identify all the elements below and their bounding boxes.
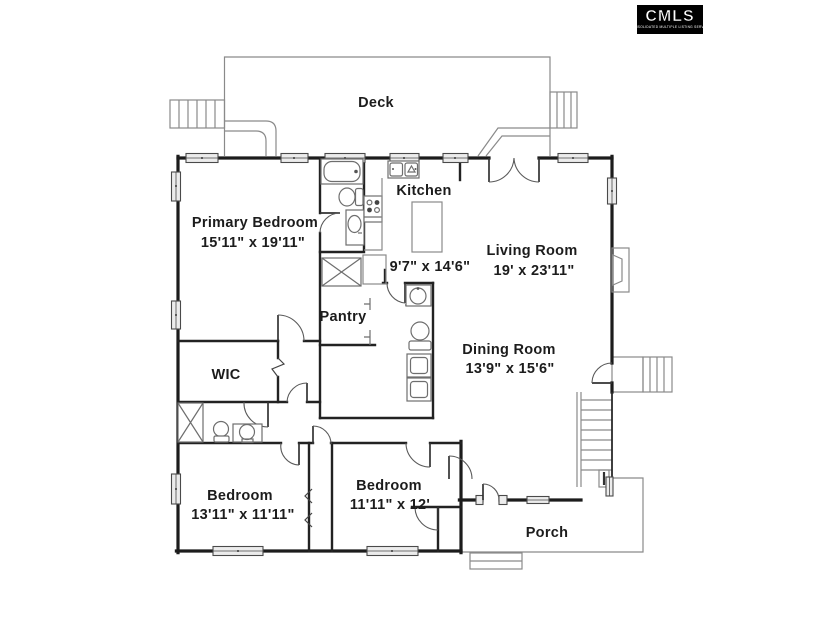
sink-vanity-icon (233, 424, 262, 443)
window (172, 301, 181, 329)
cmls-logo-text: CMLS (645, 9, 694, 25)
door (278, 315, 304, 341)
shower-icon (178, 403, 203, 442)
door-jamb (499, 496, 507, 505)
label-bedroom-right: Bedroom (356, 478, 422, 494)
label-bedroom-left: Bedroom (207, 488, 273, 504)
window (213, 547, 263, 556)
window (186, 154, 218, 163)
side-landing (612, 357, 672, 392)
label-dining-room: Dining Room (462, 342, 556, 358)
deck-walkway-left (225, 121, 277, 156)
kitchen-counter (363, 178, 386, 284)
fixtures (178, 159, 629, 443)
washer-icon (407, 354, 431, 377)
floorplan-page: Deck Primary Bedroom 15'11" x 19'11" Kit… (0, 0, 840, 630)
utility-closet-icon (322, 258, 361, 286)
staircase (577, 392, 612, 487)
label-pantry: Pantry (320, 309, 367, 325)
dims-kitchen: 9'7" x 14'6" (390, 259, 471, 275)
stove-icon (364, 196, 382, 222)
window (608, 178, 617, 204)
door (387, 283, 405, 303)
deck-stairs-right (550, 92, 577, 128)
window (172, 474, 181, 504)
wall-break-mark (272, 358, 284, 377)
label-porch: Porch (526, 525, 569, 541)
floorplan-drawing: Deck Primary Bedroom 15'11" x 19'11" Kit… (0, 0, 840, 630)
door (483, 484, 499, 500)
door (281, 443, 299, 465)
dims-primary-bedroom: 15'11" x 19'11" (201, 235, 305, 251)
bathtub-icon (321, 159, 363, 184)
label-deck: Deck (358, 95, 394, 111)
sink-vanity-icon (346, 210, 364, 245)
window (606, 477, 613, 496)
door-jamb (476, 496, 483, 505)
label-living-room: Living Room (486, 243, 577, 259)
window (443, 154, 468, 163)
toilet-icon (409, 322, 431, 350)
deck-walkway-right (478, 128, 550, 156)
dryer-icon (407, 378, 431, 401)
label-wic: WIC (211, 367, 240, 383)
toilet-icon (339, 188, 363, 206)
window (367, 547, 418, 556)
door (592, 363, 612, 383)
deck-stairs-left (170, 100, 225, 128)
porch-steps (470, 553, 522, 569)
dims-bedroom-left: 13'11" x 11'11" (191, 507, 294, 523)
sink-icon (406, 285, 431, 306)
door (406, 443, 430, 467)
kitchen-island (412, 202, 442, 252)
label-primary-bedroom: Primary Bedroom (192, 215, 318, 231)
door (287, 383, 307, 402)
door (320, 213, 340, 233)
dims-living-room: 19' x 23'11" (493, 263, 574, 279)
window (281, 154, 308, 163)
fireplace-icon (612, 248, 629, 292)
door (313, 426, 331, 444)
french-door (489, 158, 539, 182)
cmls-logo-caption: CONSOLIDATED MULTIPLE LISTING SERVICE (630, 26, 710, 29)
window (558, 154, 588, 163)
door (244, 402, 268, 427)
window (527, 497, 549, 504)
label-kitchen: Kitchen (396, 183, 451, 199)
toilet-icon (214, 422, 230, 443)
dims-dining-room: 13'9" x 15'6" (465, 361, 554, 377)
cmls-logo: CMLS CONSOLIDATED MULTIPLE LISTING SERVI… (637, 5, 703, 34)
room-labels: Deck Primary Bedroom 15'11" x 19'11" Kit… (191, 95, 577, 541)
window (172, 172, 181, 201)
dims-bedroom-right: 11'11" x 12' (350, 497, 430, 513)
kitchen-sink-icon (388, 161, 419, 178)
